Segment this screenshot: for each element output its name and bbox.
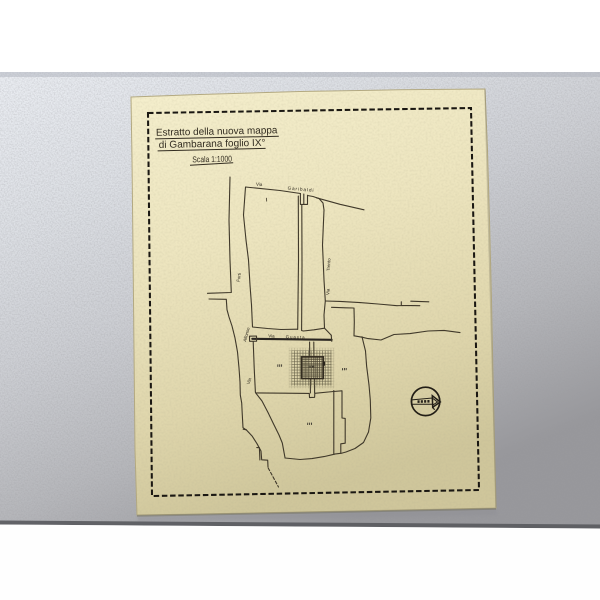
svg-text:Via: Via xyxy=(325,288,330,295)
svg-text:Trento: Trento xyxy=(326,258,332,271)
svg-text:Guasta: Guasta xyxy=(286,334,306,340)
svg-text:Via: Via xyxy=(256,182,263,187)
svg-text:Via: Via xyxy=(268,333,275,338)
